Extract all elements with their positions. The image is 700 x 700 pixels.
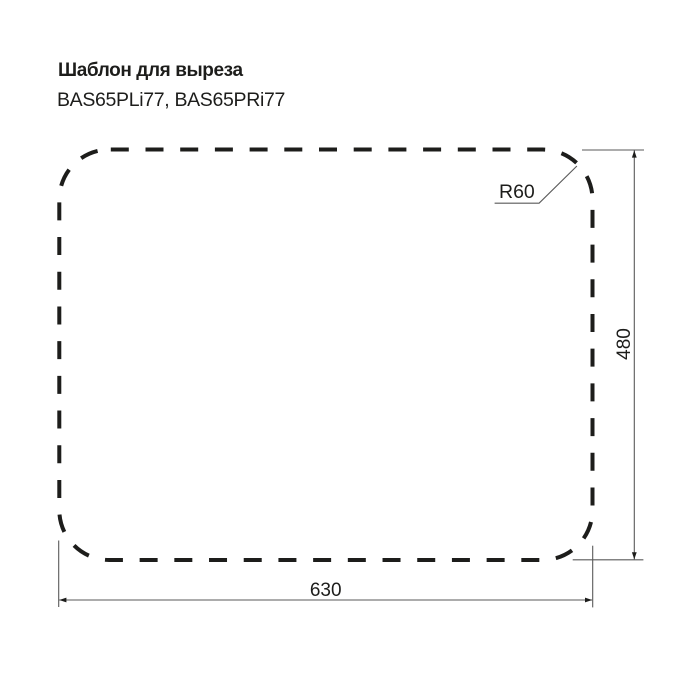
svg-text:R60: R60	[499, 181, 535, 203]
svg-text:BAS65PLi77, BAS65PRi77: BAS65PLi77, BAS65PRi77	[57, 89, 285, 111]
svg-text:480: 480	[614, 328, 635, 360]
svg-text:Шаблон для выреза: Шаблон для выреза	[58, 60, 243, 81]
svg-text:630: 630	[310, 580, 342, 601]
